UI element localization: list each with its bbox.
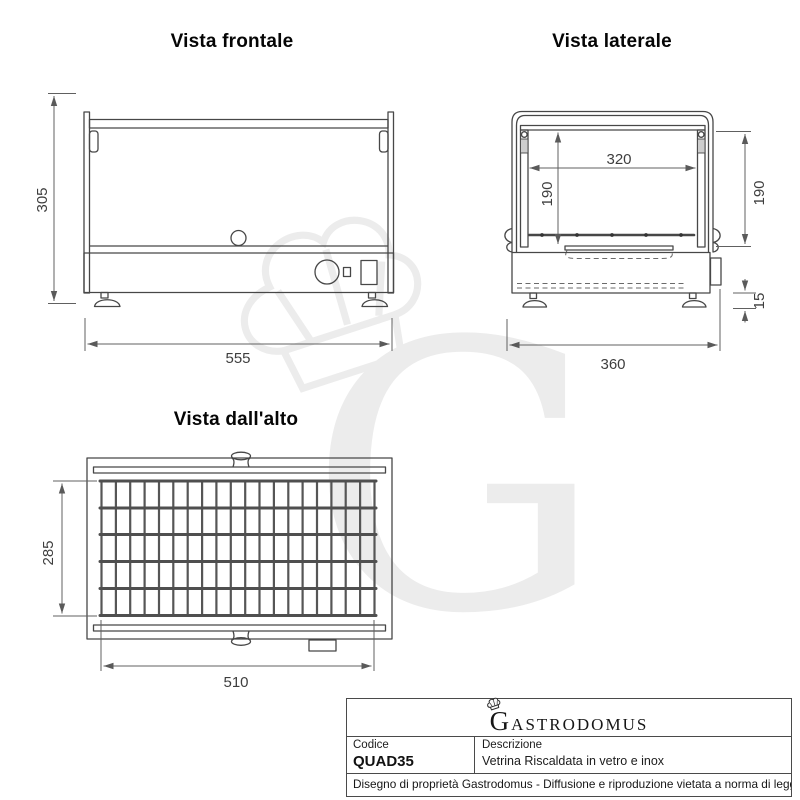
side-glass-height-dimension: 190: [751, 158, 769, 228]
brand-name: Gastrodomus: [490, 706, 649, 737]
side-inner-width-dimension: 320: [584, 151, 654, 169]
description-cell: Descrizione Vetrina Riscaldata in vetro …: [475, 737, 791, 773]
chef-hat-icon: [485, 696, 503, 713]
side-view-title: Vista laterale: [512, 31, 712, 53]
side-inner-height-dimension: 190: [539, 159, 557, 229]
title-block-logo-row: Gastrodomus: [347, 699, 791, 736]
copyright-notice: Disegno di proprietà Gastrodomus - Diffu…: [347, 773, 791, 795]
front-view-title: Vista frontale: [132, 31, 332, 53]
side-depth-dimension: 360: [578, 356, 648, 374]
description-label: Descrizione: [482, 739, 791, 751]
title-block: Gastrodomus Codice QUAD35 Descrizione Ve…: [346, 698, 792, 797]
code-value: QUAD35: [353, 753, 474, 770]
grid-horizontal-rods: [100, 481, 376, 616]
side-foot-height-dimension: 15: [751, 266, 769, 336]
top-grid-width-dimension: 510: [201, 674, 271, 692]
front-height-dimension: 305: [34, 165, 52, 235]
top-grid-depth-dimension: 285: [40, 518, 58, 588]
code-cell: Codice QUAD35: [347, 737, 475, 773]
description-value: Vetrina Riscaldata in vetro e inox: [482, 754, 791, 768]
technical-drawing-sheet: G: [0, 0, 800, 800]
grid-vertical-rods: [102, 480, 375, 617]
front-view-drawing: [48, 94, 394, 352]
drawing-linework: [0, 0, 800, 800]
top-view-drawing: [53, 452, 392, 671]
code-label: Codice: [353, 739, 474, 751]
title-block-fields-row: Codice QUAD35 Descrizione Vetrina Riscal…: [347, 736, 791, 773]
side-view-drawing: [505, 112, 756, 352]
gastrodomus-logo: Gastrodomus: [490, 706, 649, 737]
top-view-title: Vista dall'alto: [136, 409, 336, 431]
front-width-dimension: 555: [203, 350, 273, 368]
